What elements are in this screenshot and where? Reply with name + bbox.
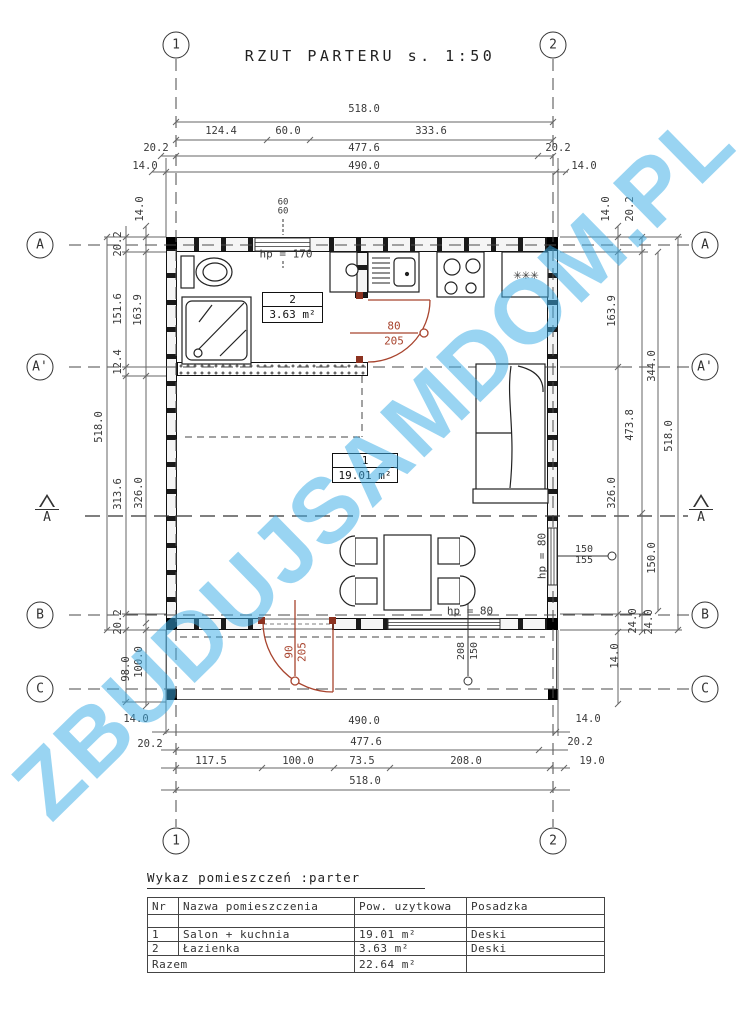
dim-label: ✳✳✳ — [513, 268, 538, 282]
dim-label: 100.0 — [134, 646, 145, 678]
dim-label: 208 — [457, 642, 467, 660]
axis-circle-C: C — [692, 676, 719, 703]
schedule-header: Nazwa pomieszczenia — [179, 898, 355, 915]
axis-circle-1: 1 — [163, 32, 190, 59]
dim-label: 24.0 — [644, 609, 655, 634]
dim-label: 313.6 — [113, 478, 124, 510]
dim-label: 208.0 — [450, 756, 482, 767]
dim-label: 20.2 — [143, 143, 168, 154]
dim-label: 333.6 — [415, 126, 447, 137]
dim-label: 100.0 — [282, 756, 314, 767]
dim-label: 518.0 — [664, 420, 675, 452]
schedule-cell: 1 — [148, 928, 179, 942]
dim-label: 151.6 — [113, 293, 124, 325]
dim-label: 163.9 — [133, 294, 144, 326]
dim-label: 20.2 — [113, 609, 124, 634]
axis-circle-B: B — [692, 602, 719, 629]
schedule-title: Wykaz pomieszczeń :parter — [147, 870, 425, 889]
dim-label: 518.0 — [348, 104, 380, 115]
section-label: A — [689, 510, 713, 525]
dim-label: 90 — [284, 645, 295, 658]
dim-label: 19.0 — [579, 756, 604, 767]
dim-label: 150 — [575, 545, 593, 555]
schedule-header: Posadzka — [467, 898, 605, 915]
dim-label: 14.0 — [575, 714, 600, 725]
schedule-cell: Deski — [467, 942, 605, 956]
dim-label: 490.0 — [348, 716, 380, 727]
dim-label: 14.0 — [601, 196, 612, 221]
dim-label: hp = 80 — [447, 606, 493, 617]
schedule-header: Nr — [148, 898, 179, 915]
schedule-cell: 19.01 m² — [355, 928, 467, 942]
dim-label: 12.4 — [113, 349, 124, 374]
schedule-cell — [467, 956, 605, 973]
dim-label: 14.0 — [135, 196, 146, 221]
bed — [473, 364, 548, 503]
schedule-cell: 3.63 m² — [355, 942, 467, 956]
dim-label: 155 — [575, 556, 593, 566]
floor-plan-sheet: 518.0124.460.0333.620.2477.620.214.0490.… — [0, 0, 745, 1024]
room-area: 3.63 m² — [263, 307, 322, 322]
dim-label: 490.0 — [348, 161, 380, 172]
dim-label: 205 — [297, 642, 308, 662]
dim-label: 150 — [470, 642, 480, 660]
dim-label: 326.0 — [134, 477, 145, 509]
stove — [437, 252, 484, 297]
dim-label: 20.2 — [113, 231, 124, 256]
axis-circle-A: A — [692, 232, 719, 259]
room-area: 19.01 m² — [333, 468, 397, 483]
dim-label: 14.0 — [123, 714, 148, 725]
schedule-cell — [355, 915, 467, 928]
dim-label: 20.2 — [567, 737, 592, 748]
axis-circle-C: C — [27, 676, 54, 703]
schedule-cell — [179, 915, 355, 928]
schedule-cell: Łazienka — [179, 942, 355, 956]
dim-label: 80 — [387, 321, 400, 332]
drawing-title: RZUT PARTERU s. 1:50 — [245, 47, 496, 65]
dim-label: 14.0 — [610, 643, 621, 668]
dim-label: 20.2 — [625, 196, 636, 221]
room-number: 1 — [333, 454, 397, 468]
schedule-header: Pow. uzytkowa — [355, 898, 467, 915]
axis-circle-A': A' — [27, 354, 54, 381]
dim-label: 117.5 — [195, 756, 227, 767]
shower — [182, 297, 251, 364]
dim-label: 477.6 — [350, 737, 382, 748]
dim-label: 518.0 — [94, 411, 105, 443]
washbasin — [330, 252, 358, 292]
schedule-cell — [467, 915, 605, 928]
dim-label: 344.0 — [647, 350, 658, 382]
section-marker-right: A — [689, 494, 713, 525]
dim-label: hp = 80 — [537, 533, 548, 579]
axis-circle-A: A — [27, 232, 54, 259]
axis-circle-2: 2 — [540, 828, 567, 855]
room-label-salon: 1 19.01 m² — [332, 453, 398, 483]
axis-circle-B: B — [27, 602, 54, 629]
dim-label: hp = 170 — [260, 249, 313, 260]
dim-label: 20.2 — [545, 143, 570, 154]
schedule-cell: 2 — [148, 942, 179, 956]
dim-label: 60 — [278, 208, 289, 217]
toilet — [181, 256, 232, 288]
axis-circle-1: 1 — [163, 828, 190, 855]
section-triangle-icon — [39, 494, 55, 507]
dim-label: 98.0 — [121, 656, 132, 681]
dim-label: 24.0 — [628, 608, 639, 633]
schedule-cell — [148, 915, 179, 928]
dim-label: 124.4 — [205, 126, 237, 137]
schedule-total-label: Razem — [148, 956, 355, 973]
dining-table — [384, 535, 431, 610]
schedule-cell: Salon + kuchnia — [179, 928, 355, 942]
axis-circle-2: 2 — [540, 32, 567, 59]
dim-label: 14.0 — [132, 161, 157, 172]
section-triangle-icon — [693, 494, 709, 507]
axis-circle-A': A' — [692, 354, 719, 381]
dim-label: 14.0 — [571, 161, 596, 172]
dim-label: 477.6 — [348, 143, 380, 154]
dim-label: 518.0 — [349, 776, 381, 787]
schedule-cell: Deski — [467, 928, 605, 942]
schedule-total-value: 22.64 m² — [355, 956, 467, 973]
section-label: A — [35, 510, 59, 525]
dim-label: 473.8 — [625, 409, 636, 441]
room-label-bathroom: 2 3.63 m² — [262, 292, 323, 323]
schedule-table: NrNazwa pomieszczeniaPow. uzytkowaPosadz… — [147, 897, 605, 973]
dim-label: 150.0 — [647, 542, 658, 574]
dim-label: 326.0 — [607, 477, 618, 509]
room-number: 2 — [263, 293, 322, 307]
section-marker-left: A — [35, 494, 59, 525]
dim-label: 163.9 — [607, 295, 618, 327]
dim-label: 205 — [384, 336, 404, 347]
dim-label: 60.0 — [275, 126, 300, 137]
kitchen-sink — [368, 252, 419, 292]
dim-label: 20.2 — [137, 739, 162, 750]
dim-label: 73.5 — [349, 756, 374, 767]
